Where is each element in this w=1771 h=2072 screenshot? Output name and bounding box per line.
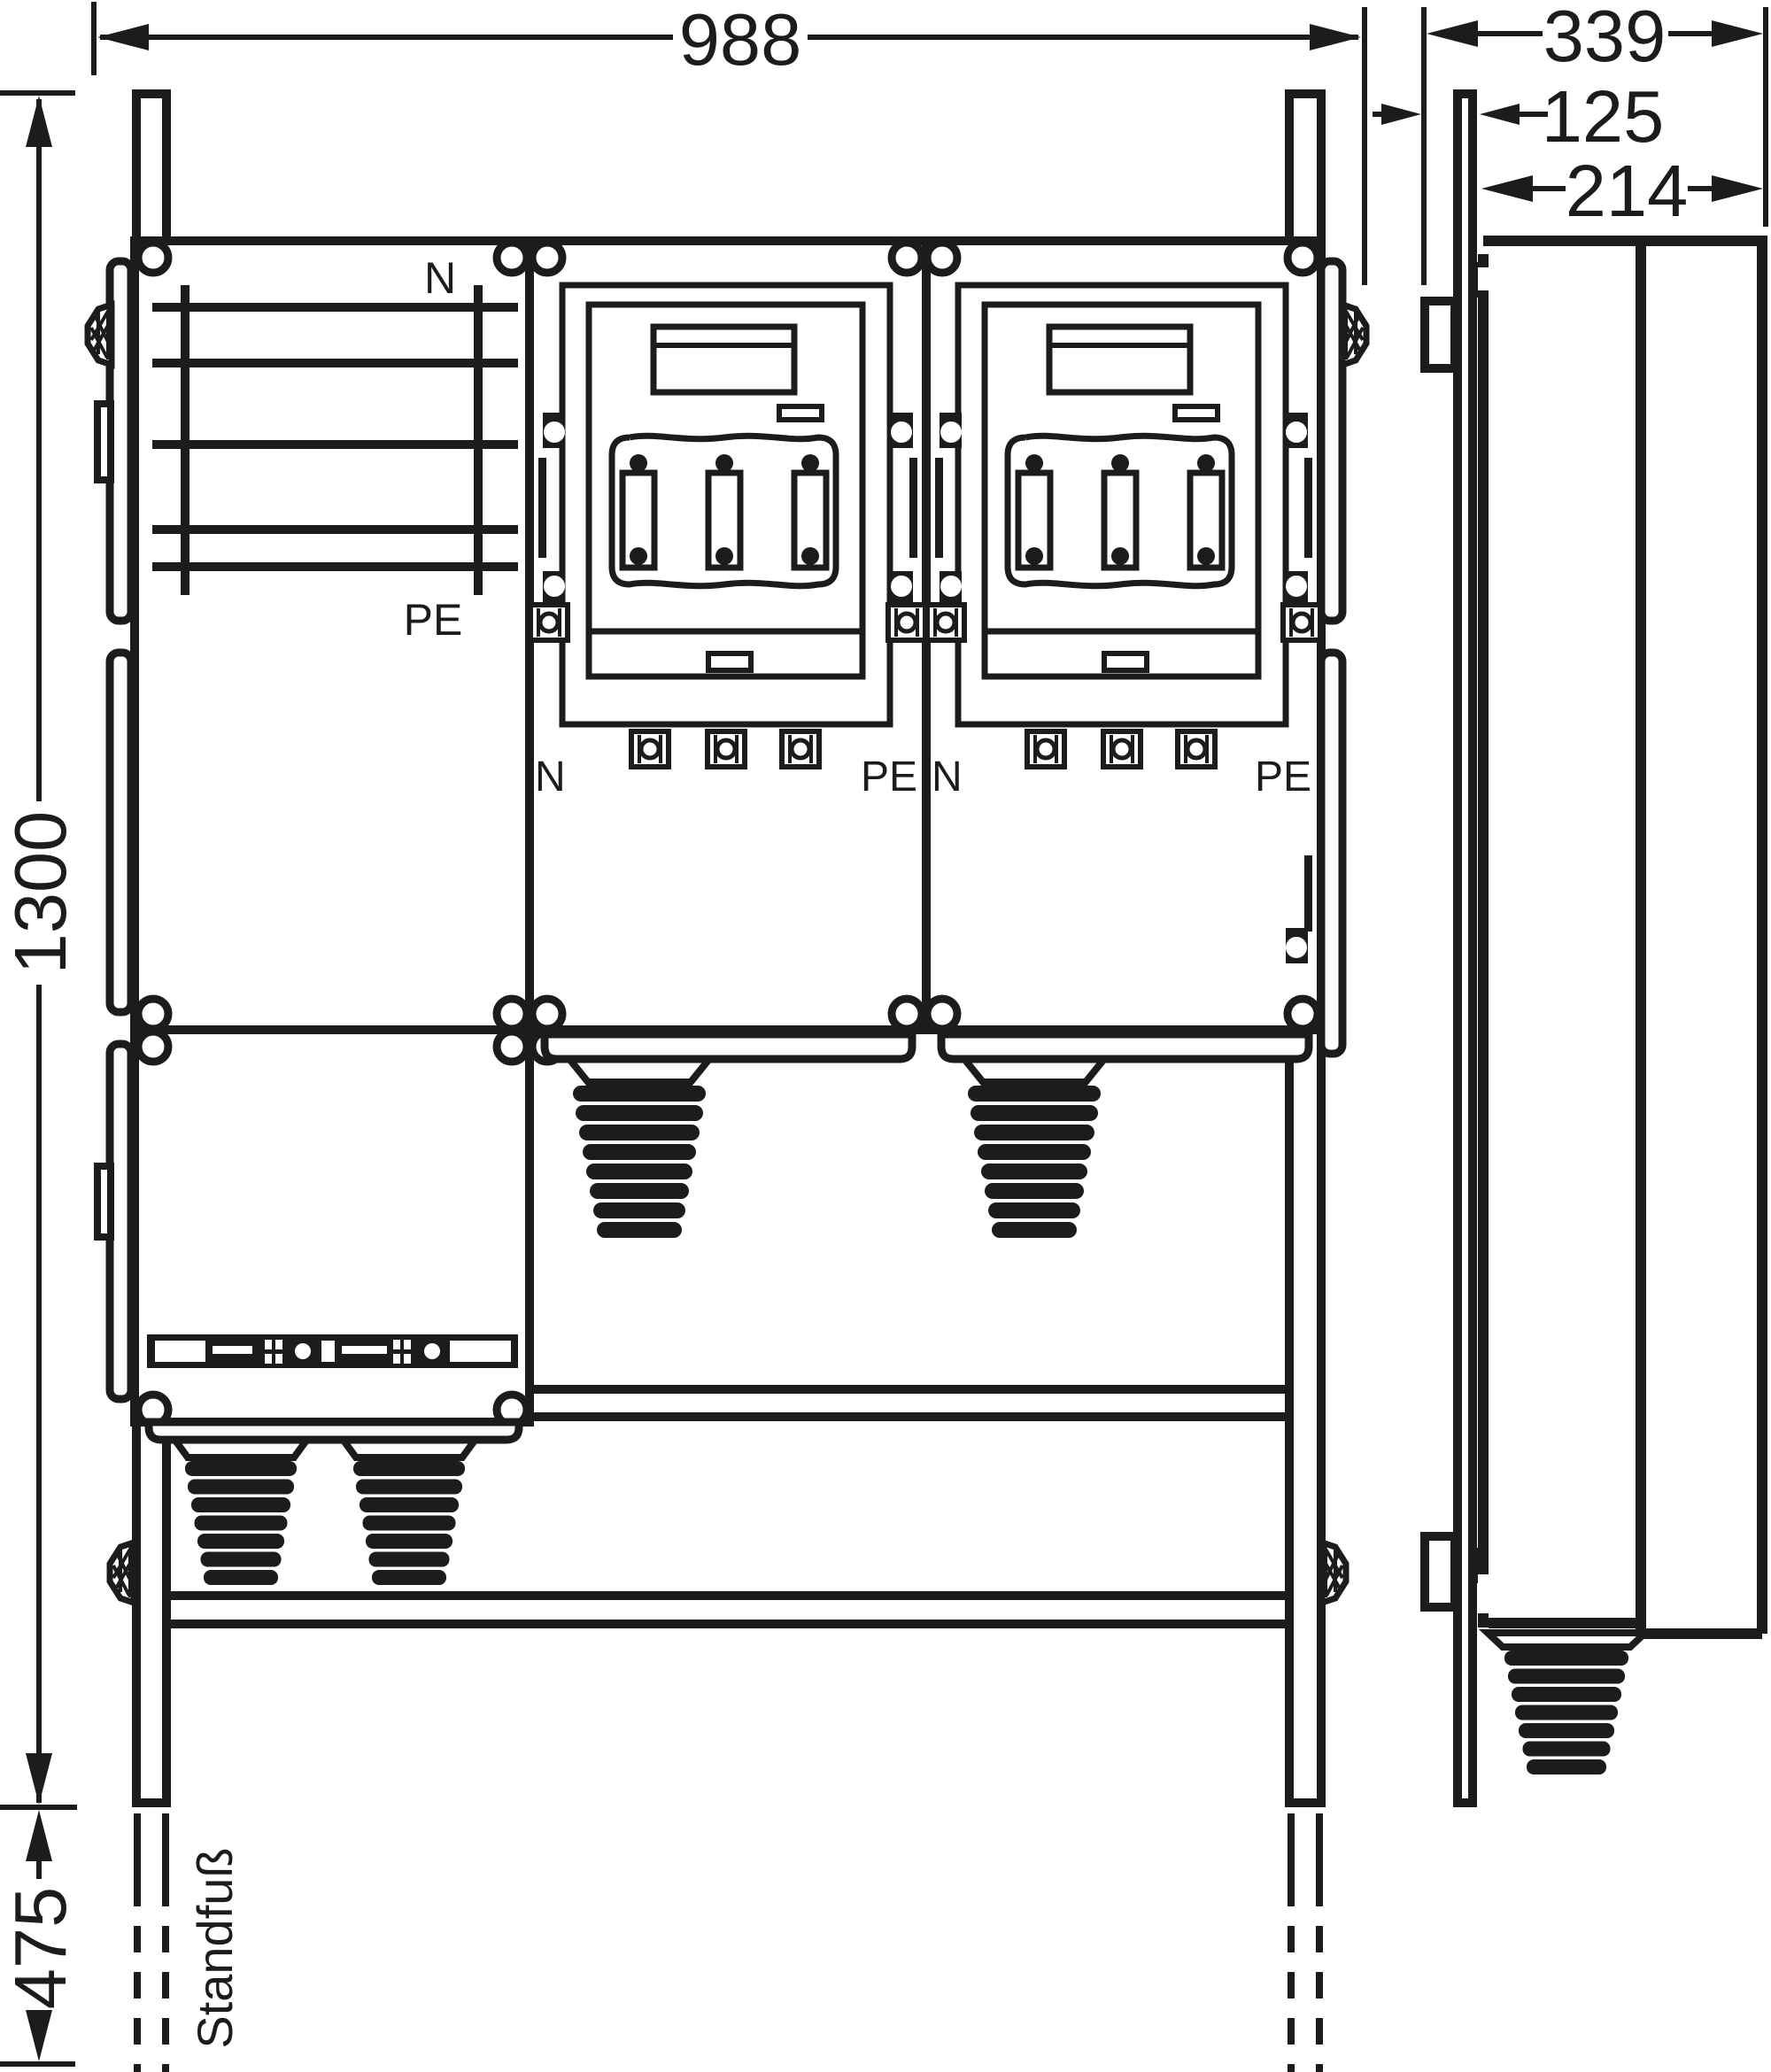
svg-text:214: 214 xyxy=(1566,150,1688,232)
svg-text:1300: 1300 xyxy=(0,811,81,975)
svg-text:N: N xyxy=(932,754,963,800)
svg-text:N: N xyxy=(424,253,456,303)
svg-text:475: 475 xyxy=(0,1887,81,2009)
svg-text:N: N xyxy=(535,754,566,800)
svg-text:PE: PE xyxy=(1255,754,1311,800)
svg-text:PE: PE xyxy=(861,754,917,800)
svg-text:339: 339 xyxy=(1543,0,1666,77)
svg-text:988: 988 xyxy=(679,0,801,81)
svg-text:125: 125 xyxy=(1542,75,1664,158)
svg-text:PE: PE xyxy=(404,595,463,645)
svg-text:Standfuß: Standfuß xyxy=(187,1847,243,2048)
